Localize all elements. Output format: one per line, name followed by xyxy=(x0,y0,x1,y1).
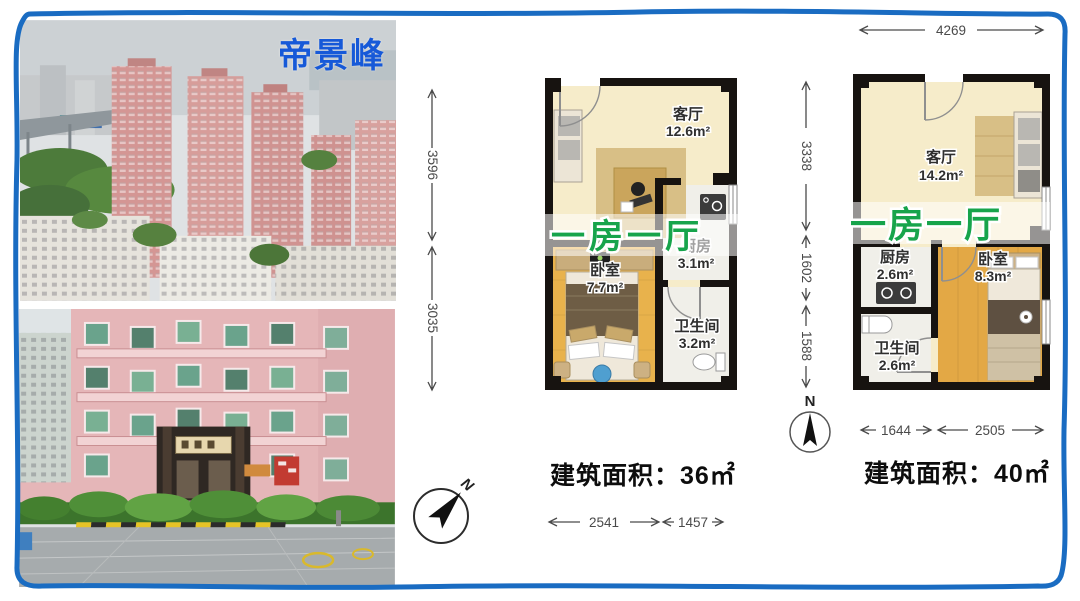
entrance-photo xyxy=(19,309,395,587)
door-arc-right-entry xyxy=(925,82,963,120)
estate-name-title: 帝景峰 xyxy=(278,28,386,77)
window-right-plan-living xyxy=(1042,187,1050,230)
north-arrow-icon-right xyxy=(803,413,817,446)
room-label-kitchen-left: 厨房 xyxy=(681,237,711,255)
area-label-right: 建筑面积：40㎡ xyxy=(864,459,1050,488)
dim-right-b2: 2505 xyxy=(975,423,1005,438)
dim-right-v3: 1588 xyxy=(799,331,814,361)
dim-left-v2: 3035 xyxy=(425,303,440,333)
door-arc-right-bedroom xyxy=(942,247,976,281)
floorplan-right-floors xyxy=(861,82,1042,382)
room-area-kitchen-left: 3.1m² xyxy=(678,255,715,271)
north-label-right: N xyxy=(805,393,816,410)
overlay-band-left: 一房一厅 xyxy=(544,214,772,256)
room-label-bath-right: 卫生间 xyxy=(874,339,919,357)
stove-icon-left-plan xyxy=(700,194,726,220)
rug-and-table-left-plan xyxy=(596,148,686,238)
window-left-plan xyxy=(729,185,737,224)
stove-icon-right-plan xyxy=(876,277,916,304)
compass-icon-left: N xyxy=(414,473,479,543)
dim-right-top: 4269 xyxy=(936,23,966,38)
bed-right-plan xyxy=(988,253,1040,380)
walls-left-plan xyxy=(545,78,737,390)
door-arc-left-bath xyxy=(668,287,700,319)
sofa-right-plan xyxy=(1014,112,1042,198)
sofa-left-plan xyxy=(554,110,582,182)
north-arrow-icon-left xyxy=(428,486,468,528)
room-area-kitchen-right: 2.6m² xyxy=(877,266,914,282)
room-area-living-left: 12.6m² xyxy=(666,123,711,139)
rug-right-plan xyxy=(975,116,1015,196)
room-label-bedroom-left: 卧室 xyxy=(590,261,620,279)
room-area-bedroom-left: 7.7m² xyxy=(587,279,624,295)
door-arc-left-entry xyxy=(560,86,600,126)
room-label-bath-left: 卫生间 xyxy=(674,317,719,335)
room-label-living-left: 客厅 xyxy=(672,105,703,123)
toilet-icon-left-plan xyxy=(693,353,725,371)
bed-left-plan xyxy=(554,250,653,383)
room-label-bedroom-right: 卧室 xyxy=(978,250,1008,268)
dim-left-b1: 2541 xyxy=(589,515,619,530)
walls-right-plan xyxy=(853,74,1050,390)
entrance-photo-illustration xyxy=(19,309,395,587)
door-arc-right-bath xyxy=(897,338,931,372)
floorplan-left: 客厅 12.6m² 卧室 7.7m² 厨房 3.1m² 卫生间 3.2m² 一房… xyxy=(414,78,772,543)
compass-icon-right: N xyxy=(790,393,830,452)
room-area-bath-left: 3.2m² xyxy=(679,335,716,351)
dims-left-bottom: 2541 1457 xyxy=(549,515,723,530)
overlay-label-right: 一房一厅 xyxy=(850,204,1002,245)
dim-right-v1: 3338 xyxy=(799,141,814,171)
room-area-bath-right: 2.6m² xyxy=(879,357,916,373)
floorplan-right: 客厅 14.2m² 厨房 2.6m² 卫生间 2.6m² 卧室 8.3m² 一房… xyxy=(790,23,1050,488)
area-label-left: 建筑面积：36㎡ xyxy=(550,461,736,490)
dim-left-v1: 3596 xyxy=(425,150,440,180)
aerial-photo: 帝景峰 xyxy=(20,20,396,301)
room-area-bedroom-right: 8.3m² xyxy=(975,268,1012,284)
dim-right-b1: 1644 xyxy=(881,423,912,438)
dims-left-vertical: 3596 3035 xyxy=(425,90,440,390)
dims-right-top: 4269 xyxy=(860,23,1043,38)
north-label-left: N xyxy=(457,475,477,496)
room-label-living-right: 客厅 xyxy=(925,148,956,166)
floorplan-left-floors xyxy=(553,86,729,382)
window-right-plan-bedroom xyxy=(1042,300,1050,344)
dim-left-b2: 1457 xyxy=(678,515,708,530)
listing-poster: 帝景峰 xyxy=(0,0,1080,601)
room-area-living-right: 14.2m² xyxy=(919,167,964,183)
overlay-label-left: 一房一厅 xyxy=(551,218,703,256)
dims-right-vertical: 3338 1602 1588 xyxy=(799,82,814,387)
dim-right-v2: 1602 xyxy=(799,253,814,283)
overlay-band-right: 一房一厅 xyxy=(846,202,1050,245)
toilet-icon-right-plan xyxy=(862,316,892,333)
dims-right-bottom: 1644 2505 xyxy=(861,423,1043,438)
room-label-kitchen-right: 厨房 xyxy=(880,248,910,266)
